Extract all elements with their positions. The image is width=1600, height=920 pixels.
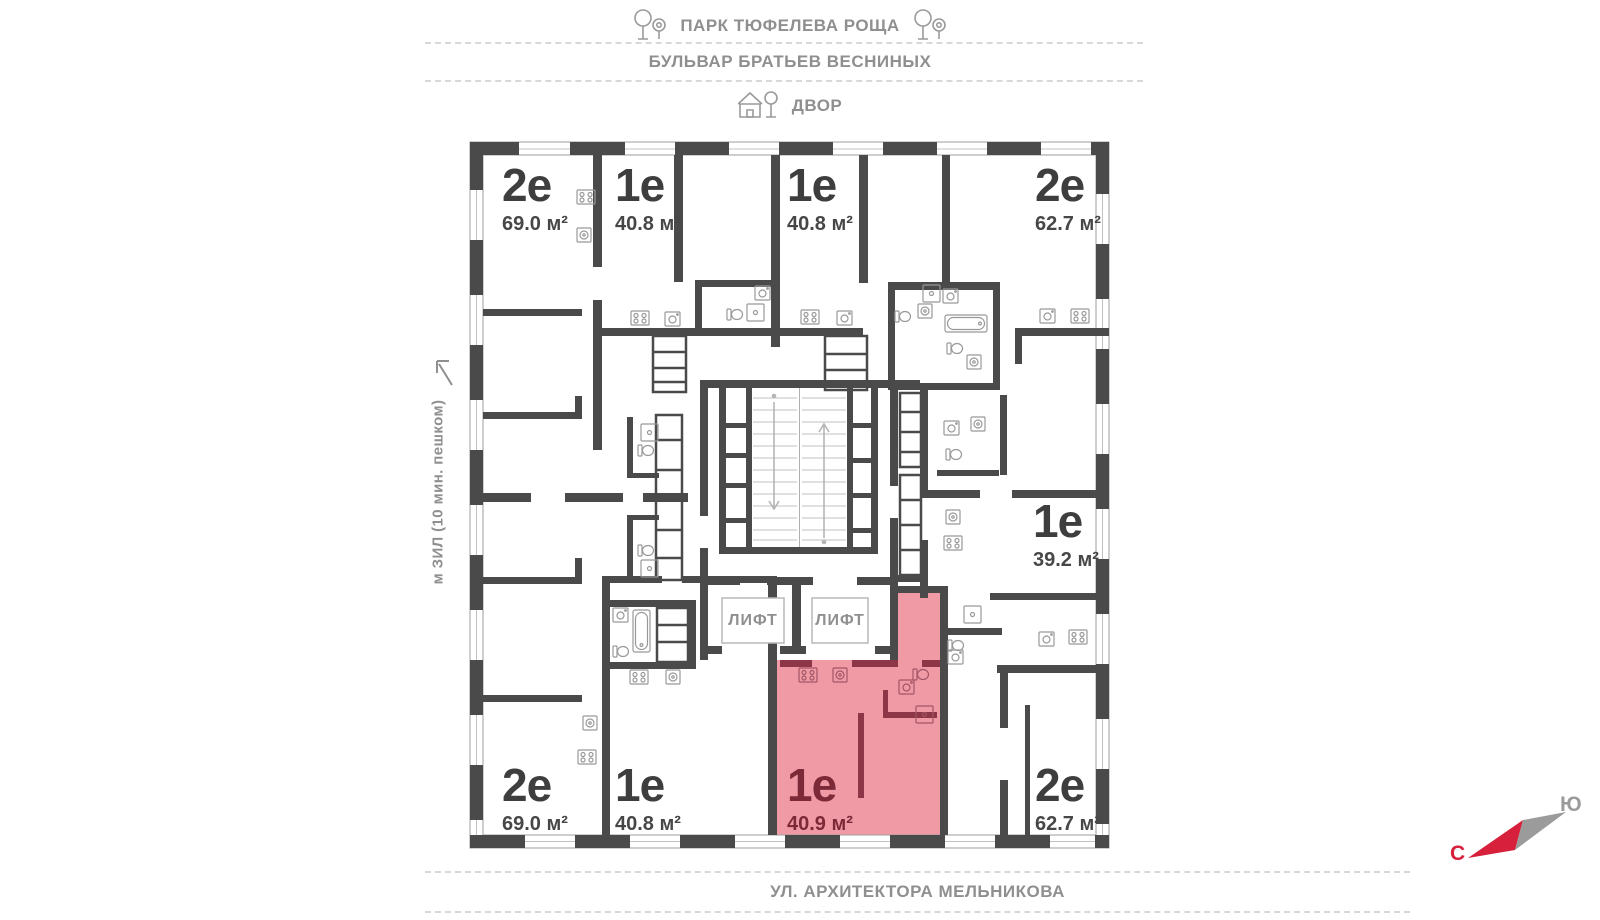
apartment-area: 40.8 м² [615, 214, 681, 234]
apartment-type: 2е [502, 764, 568, 808]
trees-icon [632, 8, 668, 44]
apartment-area: 69.0 м² [502, 214, 568, 234]
street-bottom-label: УЛ. АРХИТЕКТОРА МЕЛЬНИКОВА [770, 882, 1065, 902]
courtyard-label: ДВОР [792, 96, 843, 116]
compass-north-label: С [1450, 842, 1465, 866]
apartment-type: 1е [787, 164, 853, 208]
dashed-divider [425, 42, 1143, 44]
apartment-type: 1е [1033, 500, 1099, 544]
apartment-top-mid-right[interactable]: 1е 40.8 м² [787, 164, 853, 234]
apartment-type: 2е [1035, 164, 1101, 208]
lift-label-right: ЛИФТ [815, 612, 865, 630]
apartment-bottom-right[interactable]: 2е 62.7 м² [1035, 764, 1101, 834]
apartment-type: 1е [615, 764, 681, 808]
apartment-area: 69.0 м² [502, 814, 568, 834]
boulevard-row: БУЛЬВАР БРАТЬЕВ ВЕСНИНЫХ [425, 52, 1155, 72]
stairs [753, 388, 846, 547]
boulevard-label: БУЛЬВАР БРАТЬЕВ ВЕСНИНЫХ [649, 52, 932, 72]
selected-apartment-region[interactable] [780, 655, 942, 833]
apartment-area: 62.7 м² [1035, 814, 1101, 834]
dashed-divider [425, 871, 1410, 873]
apartment-top-right[interactable]: 2е 62.7 м² [1035, 164, 1101, 234]
dashed-divider [425, 80, 1143, 82]
courtyard-row: ДВОР [425, 90, 1155, 122]
apartment-area: 62.7 м² [1035, 214, 1101, 234]
compass-south-label: Ю [1560, 793, 1582, 817]
trees-icon [912, 8, 948, 44]
apartment-area: 40.8 м² [787, 214, 853, 234]
floor-plan-page: ПАРК ТЮФЕЛЕВА РОЩА БУЛЬВАР БРАТЬЕВ ВЕСНИ… [0, 0, 1600, 920]
house-tree-icon [738, 90, 780, 122]
apartment-area: 40.8 м² [615, 814, 681, 834]
metro-label: м ЗИЛ (10 мин. пешком) [430, 400, 447, 585]
apartment-area: 39.2 м² [1033, 550, 1099, 570]
apartment-type: 2е [502, 164, 568, 208]
lift-label-left: ЛИФТ [728, 612, 778, 630]
apartment-top-mid-left[interactable]: 1е 40.8 м² [615, 164, 681, 234]
apartment-type: 1е [615, 164, 681, 208]
dashed-divider [425, 911, 1410, 913]
park-row: ПАРК ТЮФЕЛЕВА РОЩА [425, 8, 1155, 44]
apartment-right[interactable]: 1е 39.2 м² [1033, 500, 1099, 570]
direction-arrow-icon [430, 352, 460, 390]
apartment-type: 2е [1035, 764, 1101, 808]
park-label: ПАРК ТЮФЕЛЕВА РОЩА [680, 16, 899, 36]
street-bottom-row: УЛ. АРХИТЕКТОРА МЕЛЬНИКОВА [425, 882, 1410, 902]
apartment-bottom-mid-left[interactable]: 1е 40.8 м² [615, 764, 681, 834]
apartment-bottom-left[interactable]: 2е 69.0 м² [502, 764, 568, 834]
apartment-top-left[interactable]: 2е 69.0 м² [502, 164, 568, 234]
